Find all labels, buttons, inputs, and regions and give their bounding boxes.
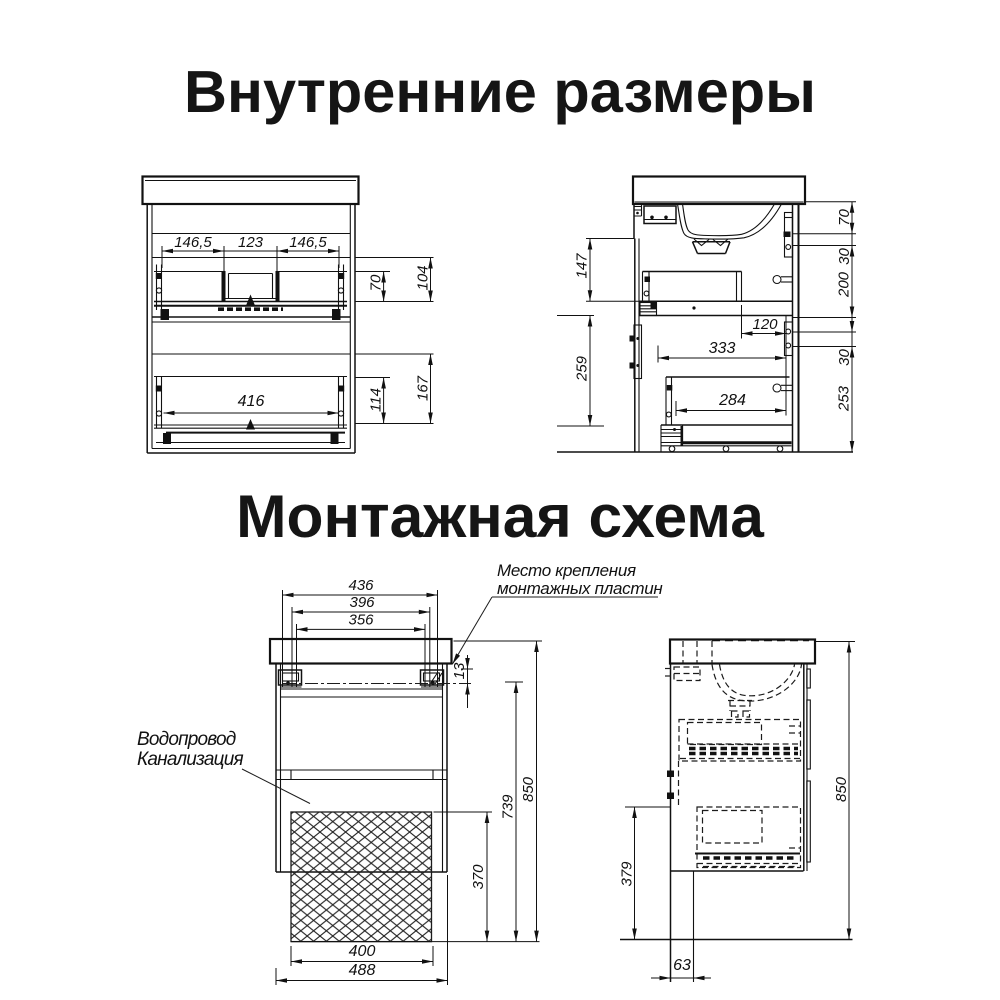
svg-text:259: 259 — [574, 355, 591, 382]
svg-text:104: 104 — [415, 265, 432, 290]
svg-text:63: 63 — [673, 957, 691, 974]
svg-text:Внутренние размеры: Внутренние размеры — [184, 58, 816, 125]
svg-text:739: 739 — [500, 794, 517, 820]
svg-text:396: 396 — [349, 594, 375, 611]
svg-text:400: 400 — [349, 943, 376, 960]
svg-text:13: 13 — [451, 662, 468, 679]
svg-text:30: 30 — [836, 248, 853, 265]
svg-text:30: 30 — [836, 349, 853, 366]
svg-text:379: 379 — [619, 861, 636, 887]
svg-text:416: 416 — [238, 393, 265, 410]
svg-text:253: 253 — [836, 385, 853, 412]
svg-text:850: 850 — [520, 776, 537, 802]
svg-text:114: 114 — [368, 388, 385, 412]
svg-text:монтажных пластин: монтажных пластин — [497, 579, 663, 598]
svg-text:70: 70 — [836, 209, 853, 226]
svg-text:167: 167 — [415, 375, 432, 401]
svg-text:436: 436 — [348, 577, 374, 594]
svg-text:488: 488 — [349, 962, 376, 979]
svg-text:370: 370 — [470, 864, 487, 890]
svg-text:146,5: 146,5 — [289, 234, 327, 251]
svg-text:Канализация: Канализация — [137, 749, 243, 770]
svg-text:200: 200 — [836, 271, 853, 298]
svg-text:850: 850 — [833, 776, 850, 802]
svg-text:356: 356 — [348, 612, 374, 629]
svg-text:147: 147 — [574, 253, 591, 279]
svg-text:146,5: 146,5 — [174, 234, 212, 251]
svg-text:70: 70 — [368, 274, 385, 291]
svg-text:120: 120 — [752, 316, 778, 333]
svg-text:123: 123 — [238, 234, 264, 251]
svg-text:Монтажная схема: Монтажная схема — [236, 482, 765, 550]
svg-text:Водопровод: Водопровод — [137, 729, 236, 750]
svg-text:333: 333 — [709, 340, 736, 357]
svg-text:Место крепления: Место крепления — [497, 561, 636, 580]
svg-text:284: 284 — [718, 392, 746, 409]
